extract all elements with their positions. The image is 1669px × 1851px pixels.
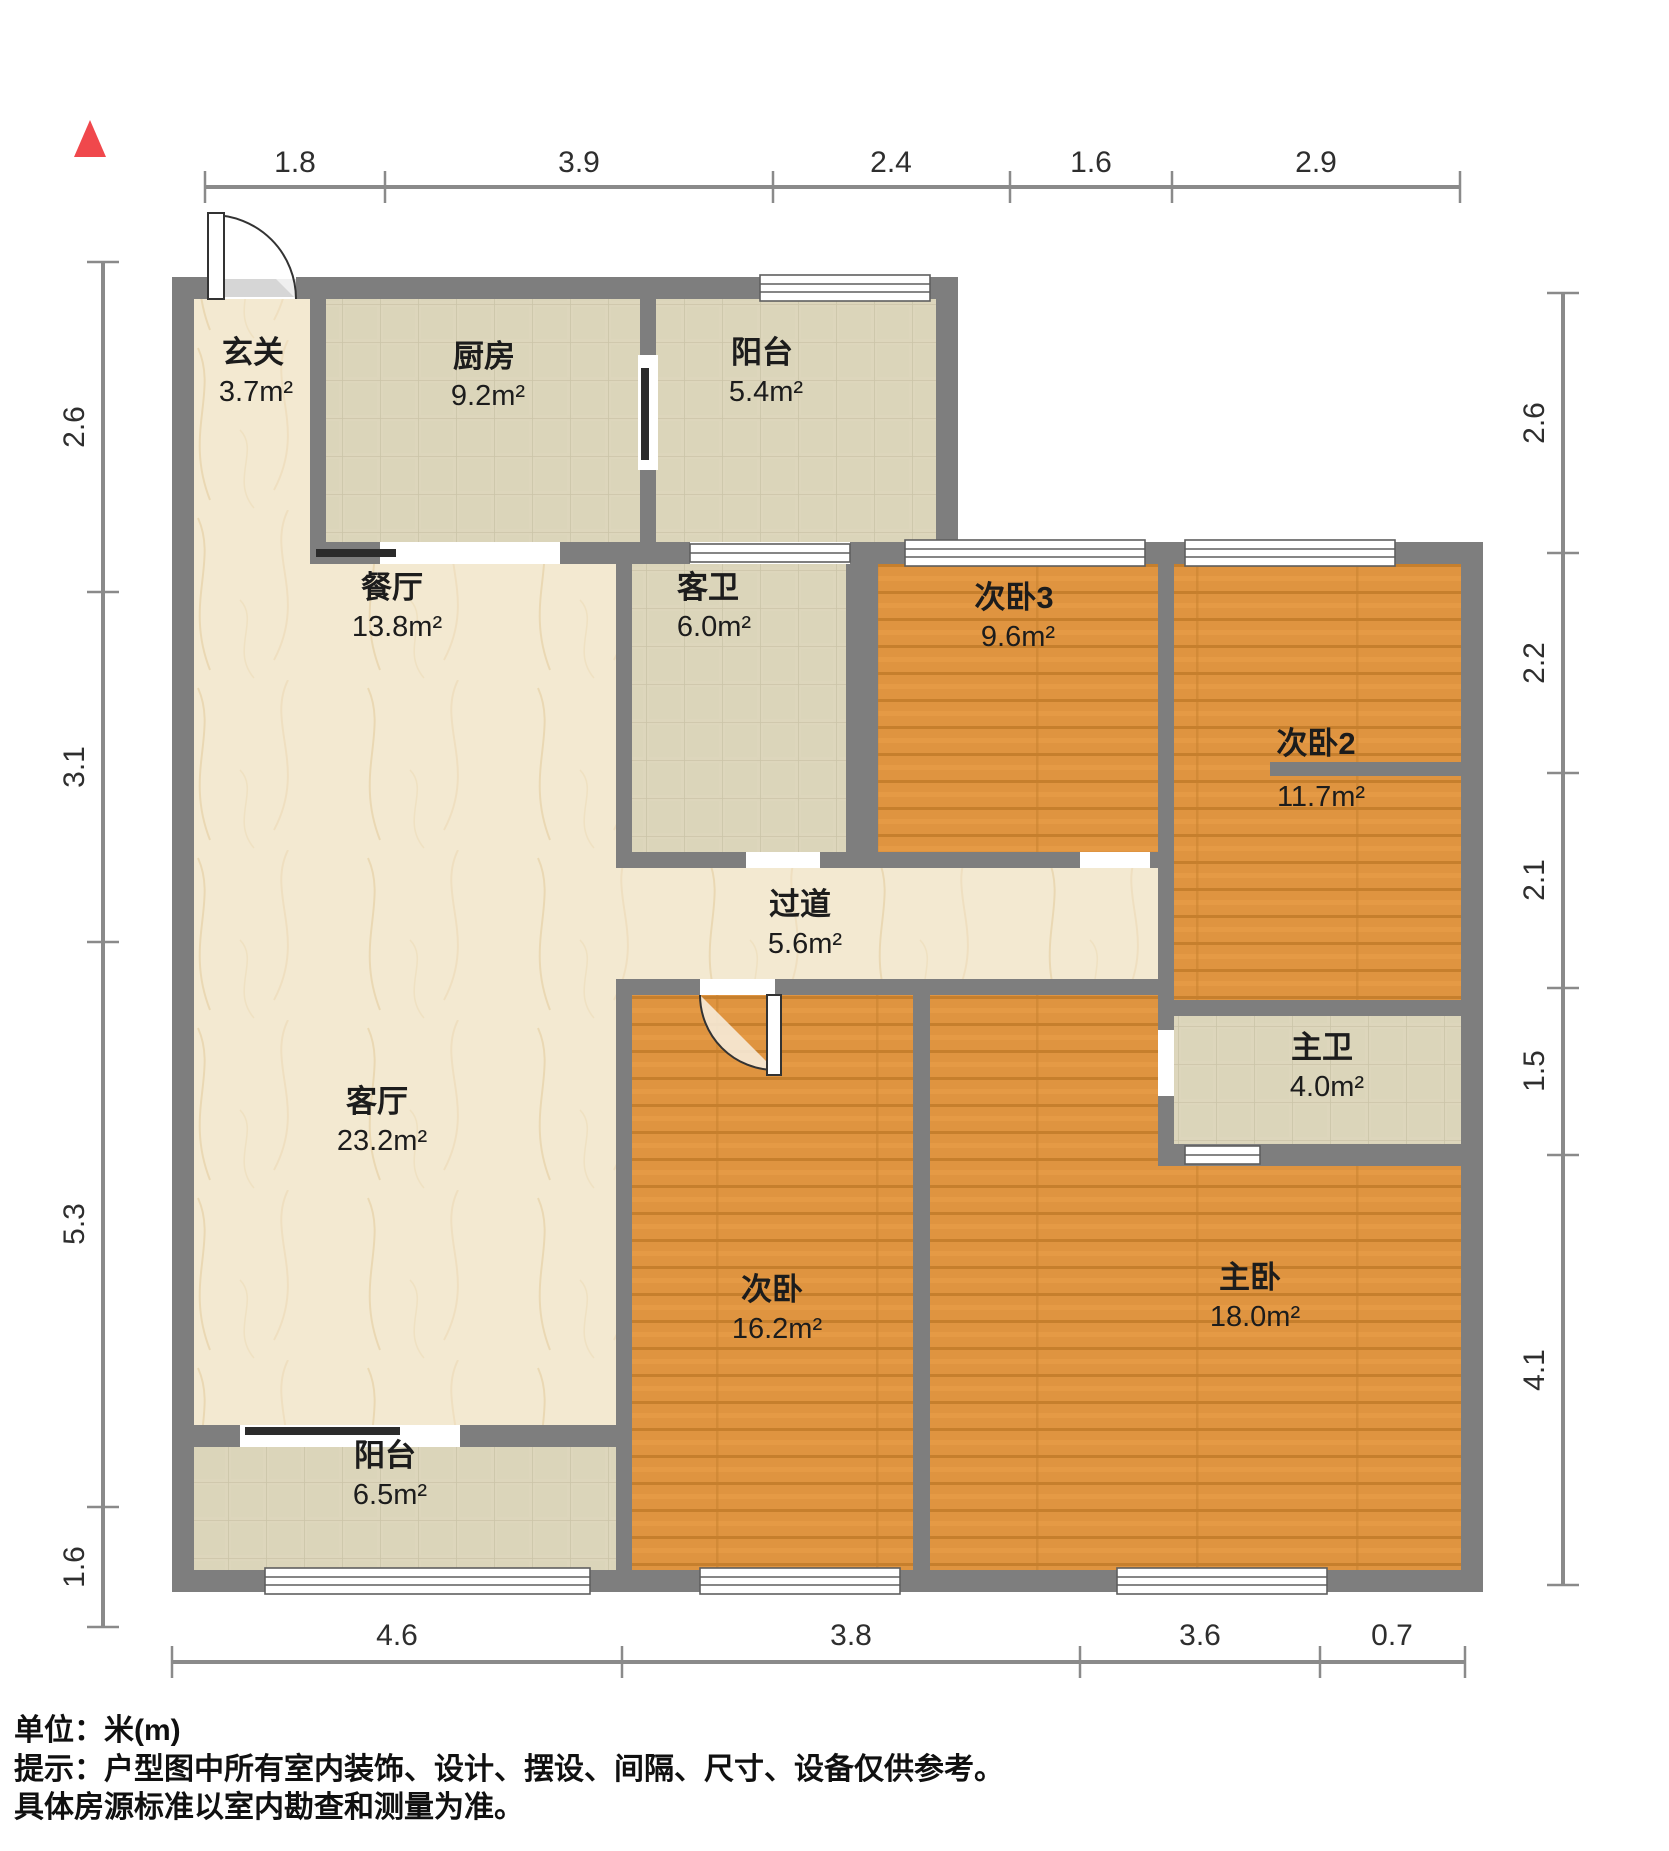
- room-label-second-bedroom: 次卧: [741, 1272, 803, 1307]
- footer-unit-label: 单位：米(m): [14, 1713, 181, 1747]
- entry-door-leaf: [208, 213, 224, 299]
- wall-outer-left: [172, 277, 194, 1592]
- guest-bath-floor: [632, 564, 846, 852]
- wall-outer-right: [1461, 542, 1483, 1592]
- room-area-entry: 3.7m²: [219, 376, 293, 408]
- dim-top-2: 3.9: [558, 146, 600, 179]
- north-arrow-icon: [74, 120, 106, 157]
- footer-notice-line2: 具体房源标准以室内勘查和测量为准。: [14, 1790, 524, 1824]
- room-label-kitchen: 厨房: [453, 339, 515, 374]
- dim-left-1: 2.6: [58, 406, 91, 448]
- room-label-master-bedroom: 主卧: [1219, 1260, 1281, 1295]
- room-label-living: 客厅: [346, 1084, 408, 1119]
- window-south-balcony-bottom: [265, 1568, 590, 1594]
- room-area-kitchen: 9.2m²: [451, 380, 525, 412]
- room-label-guest-bath: 客卫: [677, 570, 739, 605]
- opening-master-bath-door: [1158, 1030, 1174, 1096]
- second-bedroom-door-leaf: [767, 995, 781, 1075]
- room-area-bedroom2: 11.7m²: [1277, 781, 1365, 813]
- wall-second-bedroom-left: [616, 979, 632, 1570]
- wall-entry-kitchen: [310, 299, 326, 560]
- floorplan-canvas: 玄关 3.7m² 厨房 9.2m² 阳台 5.4m² 餐厅 13.8m² 客卫 …: [0, 0, 1669, 1851]
- dim-left-3: 5.3: [58, 1203, 91, 1245]
- wall-guest-bath-left: [616, 564, 632, 868]
- window-hallway-balcony: [690, 544, 850, 562]
- dining-living-floor: [194, 564, 632, 1425]
- dim-left-4: 1.6: [58, 1546, 91, 1588]
- room-area-north-balcony: 5.4m²: [729, 376, 803, 408]
- dim-right-1: 2.6: [1518, 402, 1551, 444]
- floorplan-page: 玄关 3.7m² 厨房 9.2m² 阳台 5.4m² 餐厅 13.8m² 客卫 …: [0, 0, 1669, 1851]
- dim-top-4: 1.6: [1070, 146, 1112, 179]
- dim-right-4: 1.5: [1518, 1050, 1551, 1092]
- wall-north-balcony-right: [936, 277, 958, 564]
- room-area-dining: 13.8m²: [352, 611, 443, 643]
- kitchen-slide-track: [316, 549, 396, 557]
- wall-guest-bath-bottom: [616, 852, 862, 868]
- room-area-hallway: 5.6m²: [768, 928, 842, 960]
- room-label-south-balcony: 阳台: [354, 1438, 416, 1473]
- opening-kitchen: [380, 542, 560, 564]
- wall-guest-bath-right: [846, 564, 878, 868]
- wall-master-bath-top: [1158, 1000, 1461, 1016]
- balcony-slide-track: [641, 368, 649, 460]
- window-bedroom3-top: [905, 540, 1145, 566]
- window-second-bedroom-bottom: [700, 1568, 900, 1594]
- opening-second-bedroom-door: [700, 979, 775, 995]
- dim-right-3: 2.1: [1518, 859, 1551, 901]
- room-label-north-balcony: 阳台: [731, 335, 793, 370]
- window-north-balcony-top: [760, 275, 930, 301]
- wall-bedroom-master: [913, 995, 930, 1570]
- room-area-second-bedroom: 16.2m²: [732, 1313, 823, 1345]
- room-label-dining: 餐厅: [361, 570, 423, 605]
- dim-left-2: 3.1: [58, 746, 91, 788]
- dim-top-5: 2.9: [1295, 146, 1337, 179]
- dim-top-1: 1.8: [274, 146, 316, 179]
- room-area-guest-bath: 6.0m²: [677, 611, 751, 643]
- dim-bottom-4: 0.7: [1371, 1619, 1413, 1652]
- kitchen-floor: [326, 299, 640, 542]
- dim-right-2: 2.2: [1518, 642, 1551, 684]
- dim-bottom-2: 3.8: [830, 1619, 872, 1652]
- footer-notice-line1: 提示：户型图中所有室内装饰、设计、摆设、间隔、尺寸、设备仅供参考。: [14, 1752, 1004, 1786]
- room-area-master-bath: 4.0m²: [1290, 1071, 1364, 1103]
- room-label-bedroom2: 次卧2: [1276, 726, 1355, 761]
- room-label-master-bath: 主卫: [1291, 1030, 1353, 1065]
- wall-bedroom2-partition: [1270, 762, 1461, 776]
- window-master-bath: [1185, 1146, 1260, 1164]
- room-label-hallway: 过道: [769, 887, 831, 922]
- window-bedroom2-top: [1185, 540, 1395, 566]
- dim-bottom-3: 3.6: [1179, 1619, 1221, 1652]
- hallway-floor: [632, 868, 1158, 979]
- room-label-entry: 玄关: [222, 335, 284, 370]
- opening-guest-bath-door: [746, 852, 820, 868]
- room-area-south-balcony: 6.5m²: [353, 1479, 427, 1511]
- north-balcony-floor: [656, 299, 936, 542]
- room-area-master-bedroom: 18.0m²: [1210, 1301, 1301, 1333]
- room-area-bedroom3: 9.6m²: [981, 621, 1055, 653]
- room-area-living: 23.2m²: [337, 1125, 428, 1157]
- window-master-bedroom-bottom: [1117, 1568, 1327, 1594]
- dim-right-5: 4.1: [1518, 1349, 1551, 1391]
- room-label-bedroom3: 次卧3: [974, 580, 1053, 615]
- opening-bedroom3-door: [1080, 852, 1150, 868]
- south-balcony-slide-track: [245, 1427, 400, 1435]
- footer-notes: 单位：米(m) 提示：户型图中所有室内装饰、设计、摆设、间隔、尺寸、设备仅供参考…: [14, 1713, 1004, 1824]
- dim-bottom-1: 4.6: [376, 1619, 418, 1652]
- dim-top-3: 2.4: [870, 146, 912, 179]
